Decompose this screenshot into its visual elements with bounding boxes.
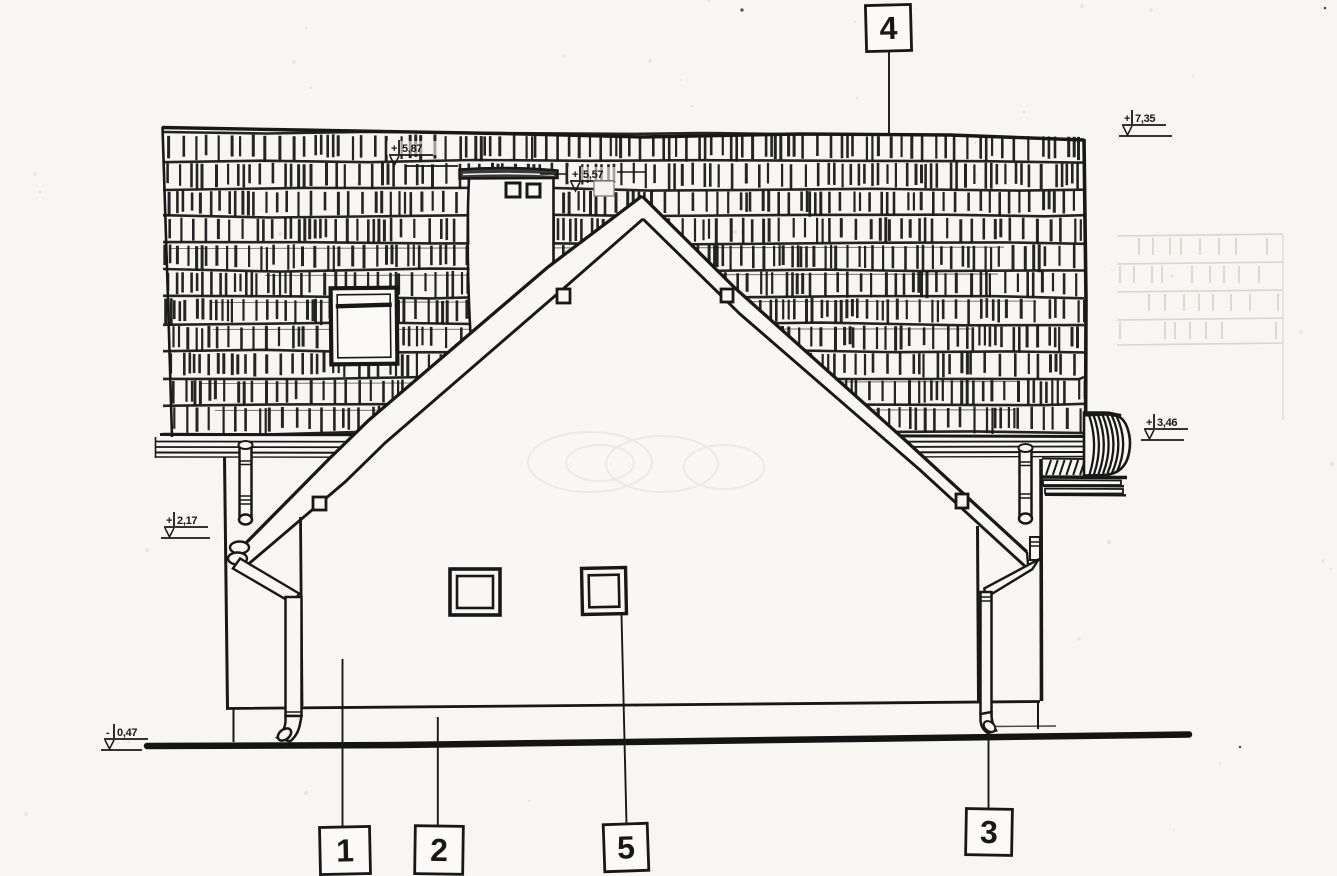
svg-text:1: 1 (336, 832, 355, 868)
svg-text:7,35: 7,35 (1135, 113, 1155, 125)
svg-text:3,46: 3,46 (1157, 417, 1177, 429)
svg-text:4: 4 (879, 10, 898, 46)
svg-text:+: + (572, 169, 578, 181)
svg-text:+: + (1146, 417, 1152, 429)
svg-text:5: 5 (616, 829, 635, 866)
svg-text:2: 2 (430, 832, 448, 868)
svg-text:+: + (1124, 113, 1130, 125)
svg-text:0,47: 0,47 (117, 727, 137, 739)
svg-text:+: + (391, 143, 397, 155)
svg-text:5,87: 5,87 (402, 143, 422, 155)
svg-text:5,57: 5,57 (583, 169, 603, 181)
svg-text:2,17: 2,17 (177, 515, 197, 527)
svg-text:3: 3 (980, 814, 998, 850)
svg-text:+: + (166, 515, 172, 527)
